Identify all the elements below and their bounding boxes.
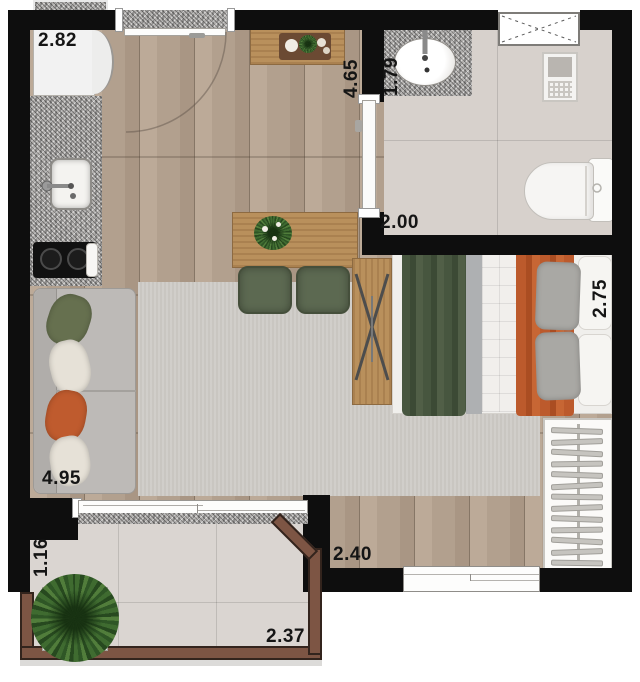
- dimension-label-hall: 4.65: [341, 59, 363, 98]
- balcony-railing: [308, 548, 322, 655]
- kitchen-sink: [50, 158, 92, 210]
- bed-duvet: [482, 248, 516, 412]
- bed-pillow-gray: [535, 331, 581, 400]
- floor-plan: 2.82 4.65 1.79 2.00 2.75 4.95 2.40 1.16 …: [0, 0, 640, 682]
- bedside-desk: [352, 258, 392, 405]
- entry-jamb: [115, 8, 123, 32]
- bedroom-window: [403, 566, 540, 592]
- dimension-label-bedroom-depth: 2.75: [590, 279, 612, 318]
- dimension-label-bath-counter: 1.79: [381, 57, 403, 96]
- bed-runner-gray: [466, 246, 482, 414]
- dimension-label-kitchen: 2.82: [38, 30, 77, 52]
- bed-pillow-gray: [535, 261, 581, 330]
- wall: [540, 568, 632, 592]
- bathroom-door-handle: [355, 120, 362, 132]
- entry-jamb: [227, 8, 235, 32]
- wall: [8, 498, 78, 540]
- wall: [612, 10, 632, 592]
- dining-table: [232, 212, 358, 268]
- toilet-bowl: [524, 162, 594, 220]
- dimension-label-balcony-depth: 1.16: [31, 538, 53, 577]
- bathroom-window: [498, 12, 580, 46]
- dimension-label-balcony-width: 2.37: [266, 626, 305, 648]
- counter-end-shelf: [86, 243, 98, 277]
- bathroom-sink: [394, 38, 456, 86]
- dimension-label-living: 4.95: [42, 468, 81, 490]
- shower-rack: [542, 52, 578, 102]
- dimension-label-bedroom-width: 2.40: [333, 544, 372, 566]
- closet: [543, 418, 613, 572]
- dining-chair: [296, 266, 350, 314]
- bed-blanket-green: [402, 244, 466, 416]
- bathroom-door-cap: [358, 208, 380, 218]
- dining-chair: [238, 266, 292, 314]
- balcony-plant: [31, 574, 119, 662]
- console-table: [250, 27, 345, 65]
- bed-pillow-white: [578, 334, 612, 406]
- table-centerpiece: [254, 216, 292, 250]
- entry-door-handle: [189, 33, 205, 38]
- entry-door: [124, 28, 226, 36]
- bathroom-sliding-door: [362, 100, 376, 212]
- dimension-label-bathroom: 2.00: [380, 212, 419, 234]
- entry-threshold: [122, 10, 228, 30]
- bathroom-wall: [362, 235, 612, 255]
- console-plant: [299, 35, 317, 53]
